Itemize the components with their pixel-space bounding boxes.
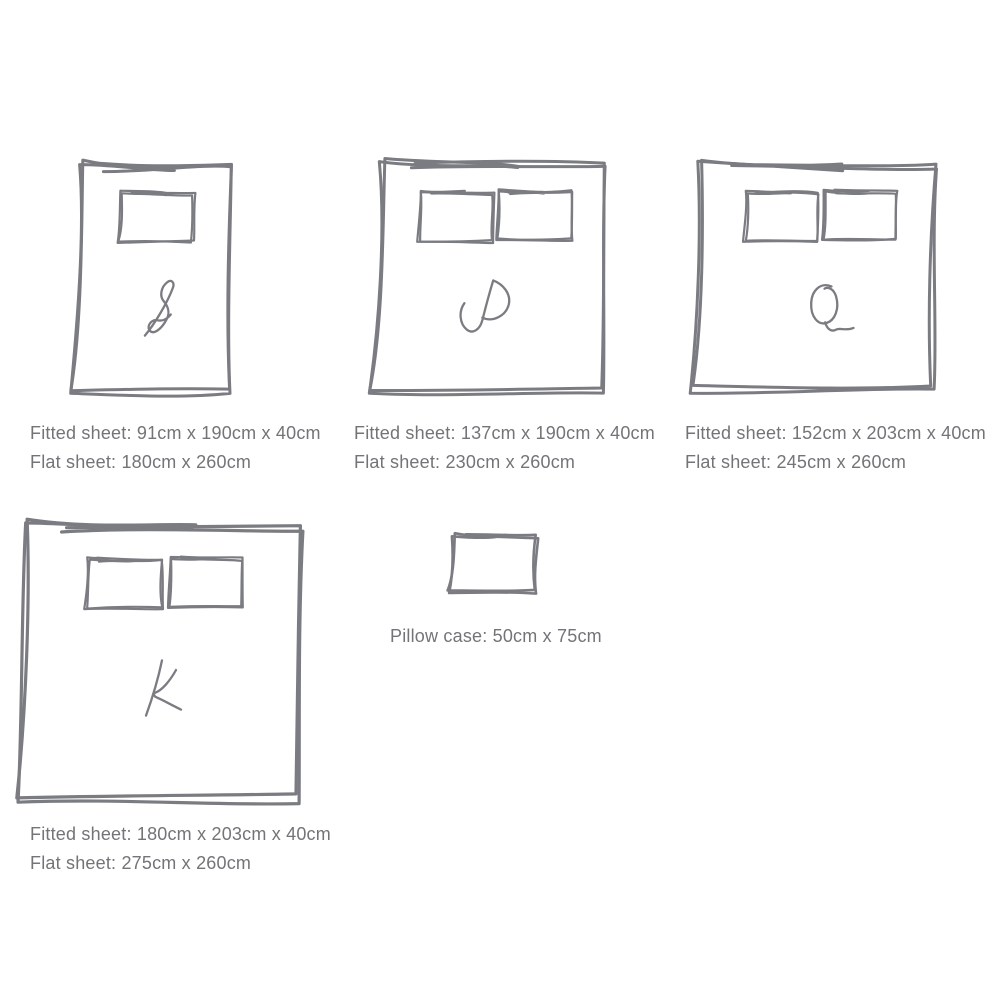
king-flat-sheet-label: Flat sheet: 275cm x 260cm xyxy=(30,849,331,878)
pillow-icon xyxy=(118,191,196,243)
queen-fitted-sheet-label: Fitted sheet: 152cm x 203cm x 40cm xyxy=(685,419,986,448)
mattress-outline xyxy=(448,533,536,591)
single-fitted-sheet-label: Fitted sheet: 91cm x 190cm x 40cm xyxy=(30,419,321,448)
pillow-icon-overdraw xyxy=(87,560,162,609)
pillow-icon xyxy=(84,557,163,609)
double-dimensions: Fitted sheet: 137cm x 190cm x 40cm Flat … xyxy=(354,419,655,477)
pillow-icon xyxy=(822,190,897,241)
pillow-icon-overdraw xyxy=(420,192,492,242)
pillow-case-label: Pillow case: 50cm x 75cm xyxy=(390,622,602,651)
pillow-icon-overdraw xyxy=(497,191,572,240)
pillow-icon-overdraw xyxy=(169,559,242,607)
sketch-canvas xyxy=(16,512,312,814)
single-flat-sheet-label: Flat sheet: 180cm x 260cm xyxy=(30,448,321,477)
bed-sketch-king xyxy=(16,512,312,814)
king-dimensions: Fitted sheet: 180cm x 203cm x 40cm Flat … xyxy=(30,820,331,878)
size-letter-q xyxy=(811,285,853,330)
sketch-canvas xyxy=(692,148,946,402)
pillow-icon xyxy=(168,557,243,608)
size-letter-d xyxy=(461,280,510,331)
bed-sketch-single xyxy=(70,152,242,404)
bed-sketch-queen xyxy=(692,148,946,402)
king-fitted-sheet-label: Fitted sheet: 180cm x 203cm x 40cm xyxy=(30,820,331,849)
mattress-outline-overdraw xyxy=(369,162,605,395)
bed-sketch-double xyxy=(374,148,618,406)
bed-sheet-size-guide: Fitted sheet: 91cm x 190cm x 40cm Flat s… xyxy=(0,0,1000,1000)
pillow-case-sketch xyxy=(446,528,546,602)
mattress-outline-overdraw xyxy=(71,165,232,397)
mattress-outline-overdraw xyxy=(449,535,538,594)
sketch-canvas xyxy=(446,528,546,602)
sketch-canvas xyxy=(70,152,242,404)
pillow-icon-overdraw xyxy=(824,191,897,239)
queen-dimensions: Fitted sheet: 152cm x 203cm x 40cm Flat … xyxy=(685,419,986,477)
pillow-icon-overdraw xyxy=(746,192,819,241)
pillow-case-dimensions: Pillow case: 50cm x 75cm xyxy=(390,622,602,651)
pillow-icon xyxy=(743,191,818,242)
sketch-canvas xyxy=(374,148,618,406)
size-letter-s xyxy=(145,281,174,336)
size-letter-k xyxy=(146,660,181,715)
queen-flat-sheet-label: Flat sheet: 245cm x 260cm xyxy=(685,448,986,477)
pillow-icon-overdraw xyxy=(118,193,192,243)
double-flat-sheet-label: Flat sheet: 230cm x 260cm xyxy=(354,448,655,477)
single-dimensions: Fitted sheet: 91cm x 190cm x 40cm Flat s… xyxy=(30,419,321,477)
mattress-outline-overdraw xyxy=(690,161,936,393)
double-fitted-sheet-label: Fitted sheet: 137cm x 190cm x 40cm xyxy=(354,419,655,448)
pillow-icon xyxy=(417,191,494,243)
pillow-icon xyxy=(496,189,572,240)
